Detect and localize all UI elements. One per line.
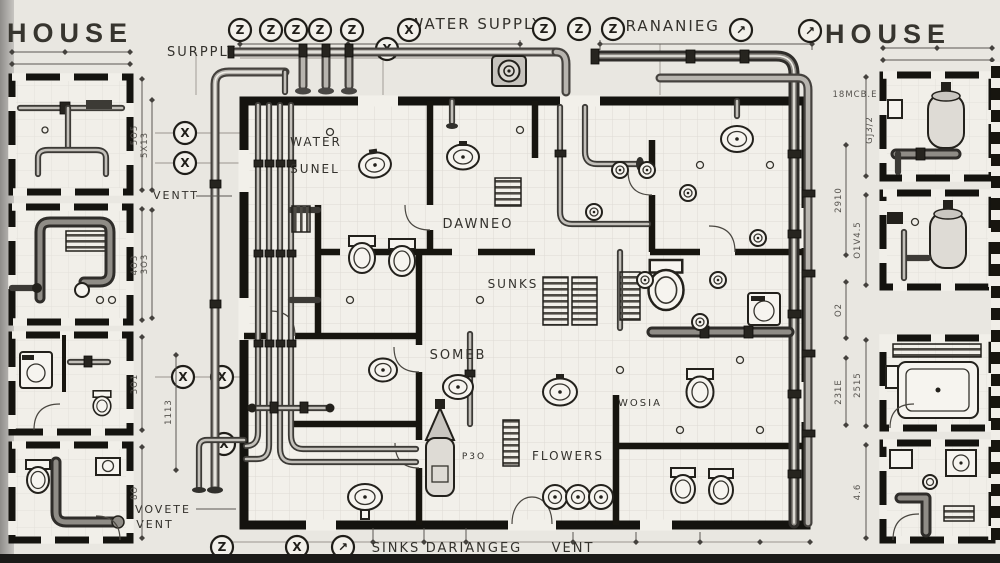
toilet-fixture — [389, 239, 415, 276]
mini-room — [883, 193, 992, 287]
label-vovete: VOVETE — [135, 503, 191, 516]
toilet-fixture — [671, 468, 695, 503]
symbol-z: Z — [568, 18, 590, 40]
dim-rc1a: 18MCB.E — [833, 90, 878, 100]
mini-room — [883, 443, 992, 540]
label-water-supply: WATER SUPPLY — [408, 15, 543, 33]
symbol-z: Z — [229, 19, 251, 41]
mini-room — [12, 77, 130, 192]
page-title-right: HOUSE — [825, 19, 951, 49]
dim-lc4: 8O — [130, 486, 140, 500]
washing-machine — [748, 293, 780, 325]
symbol-x: X — [398, 19, 420, 41]
sink-fixture — [369, 359, 397, 382]
svg-text:X: X — [180, 156, 190, 170]
symbol-z: Z — [341, 19, 363, 41]
dim-right-bot: 231E — [834, 379, 844, 405]
svg-text:Z: Z — [267, 23, 276, 37]
label-ventt: VENTT — [153, 189, 199, 202]
symbol-arrow: ↗ — [730, 19, 752, 41]
svg-text:X: X — [404, 23, 414, 37]
mini-room — [12, 445, 130, 540]
svg-text:Z: Z — [575, 22, 584, 36]
dim-rc2: O1V4.5 — [853, 221, 863, 258]
symbol-z: Z — [285, 19, 307, 41]
svg-text:Z: Z — [218, 540, 227, 554]
bottom-edge-bar — [0, 554, 1000, 563]
valve-assembly — [492, 56, 526, 86]
label-sunel: SUNEL — [290, 162, 340, 176]
dim-rc4: 4.6 — [853, 484, 863, 501]
mini-room — [883, 338, 992, 428]
page-title-left: HOUSE — [7, 18, 133, 48]
floor-drains — [543, 485, 613, 509]
label-wosia: WOSIA — [618, 398, 662, 409]
svg-text:↗: ↗ — [736, 23, 746, 37]
dim-right-top: 2910 — [834, 187, 844, 213]
symbol-x: X — [174, 122, 196, 144]
mini-room — [12, 207, 130, 322]
symbol-z: Z — [602, 18, 624, 40]
svg-text:X: X — [180, 126, 190, 140]
svg-text:↗: ↗ — [805, 24, 815, 38]
label-sinks: SINKS — [372, 541, 421, 556]
toilet-fixture — [709, 469, 733, 504]
svg-text:↗: ↗ — [338, 540, 348, 554]
plumbing-plan-drawing: HOUSE HOUSE SURPPLY WATER SUPPLY DRANANI… — [0, 0, 1000, 563]
svg-text:Z: Z — [540, 22, 549, 36]
dim-lc2: 4O3 — [130, 255, 140, 276]
dim-lc3: 3O1 — [130, 374, 140, 395]
toilet-fixture — [649, 260, 684, 310]
svg-text:X: X — [178, 370, 188, 384]
sink-fixture — [721, 126, 753, 152]
left-room-column: 5O5 4O3 3O1 8O — [9, 49, 145, 541]
label-supply: SURPPLY — [167, 45, 237, 60]
label-dariangeg: DARIANGEG — [426, 541, 523, 556]
dim-left-bot: 1113 — [164, 399, 174, 425]
label-dawneo: DAWNEO — [443, 217, 514, 232]
mini-room — [12, 335, 130, 432]
dim-rc1b: GJ3/2 — [865, 116, 875, 144]
label-water: WATER — [290, 135, 342, 149]
right-edge-wall-strip — [991, 62, 1000, 540]
label-flowers: FLOWERS — [532, 449, 604, 463]
label-sunks: SUNKS — [488, 277, 539, 291]
label-vent: VENT — [552, 541, 595, 556]
svg-text:Z: Z — [348, 23, 357, 37]
svg-text:Z: Z — [316, 23, 325, 37]
svg-text:Z: Z — [609, 22, 618, 36]
toilet-fixture — [687, 369, 714, 408]
dim-rc3: 2515 — [853, 372, 863, 398]
symbol-x: X — [172, 366, 194, 388]
label-drainage: DRANANIEG — [612, 17, 720, 35]
label-someb: SOMEB — [430, 348, 487, 363]
svg-text:X: X — [292, 540, 302, 554]
sink-fixture — [443, 375, 473, 399]
symbol-z: Z — [309, 19, 331, 41]
drawing-canvas: HOUSE HOUSE SURPPLY WATER SUPPLY DRANANI… — [0, 0, 1000, 563]
svg-text:Z: Z — [292, 23, 301, 37]
riser-pipes — [295, 44, 357, 95]
symbol-arrow: ↗ — [799, 20, 821, 42]
dim-lc1: 5O5 — [130, 125, 140, 146]
svg-text:Z: Z — [236, 23, 245, 37]
symbol-z: Z — [260, 19, 282, 41]
symbol-x: X — [174, 152, 196, 174]
dim-right-mid: O2 — [834, 303, 844, 317]
toilet-fixture — [349, 236, 375, 273]
mini-room — [883, 75, 992, 178]
label-p30: P3O — [462, 452, 486, 462]
symbol-z: Z — [533, 18, 555, 40]
